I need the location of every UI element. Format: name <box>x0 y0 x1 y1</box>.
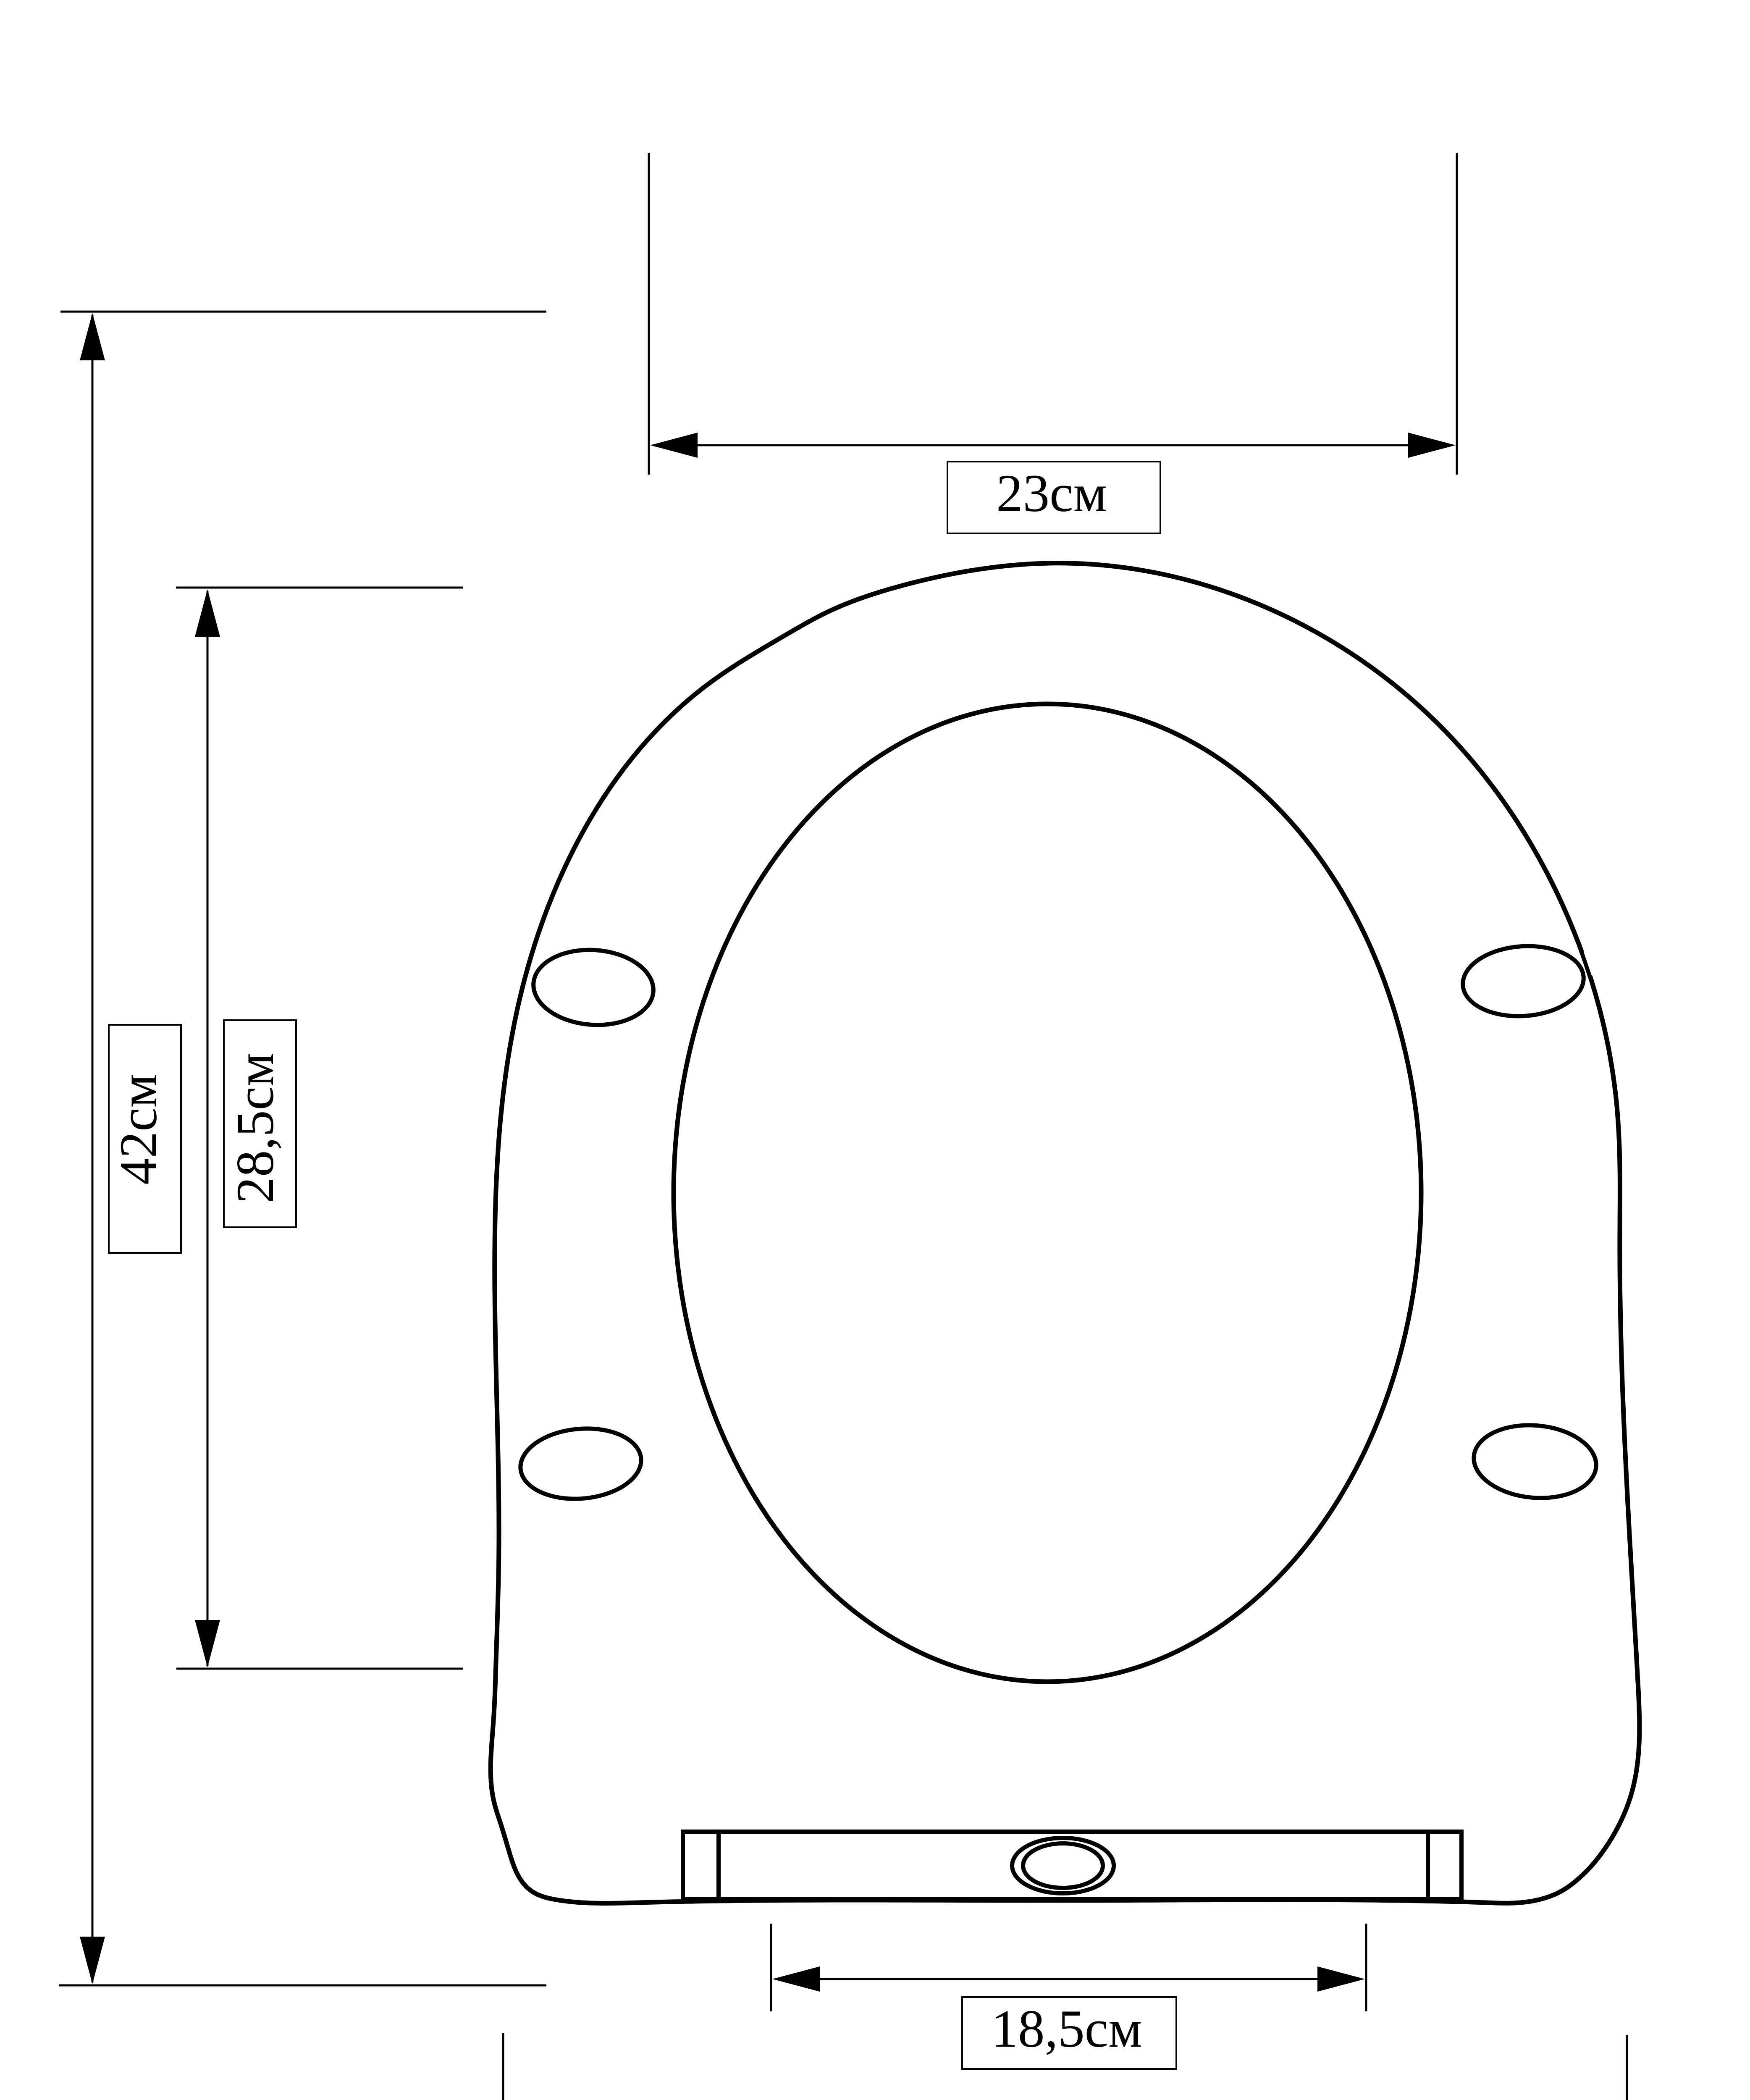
svg-text:18,5см: 18,5см <box>992 2000 1142 2058</box>
svg-text:42см: 42см <box>109 1074 168 1185</box>
svg-text:23см: 23см <box>996 464 1107 523</box>
svg-text:28,5см: 28,5см <box>226 1053 285 1204</box>
